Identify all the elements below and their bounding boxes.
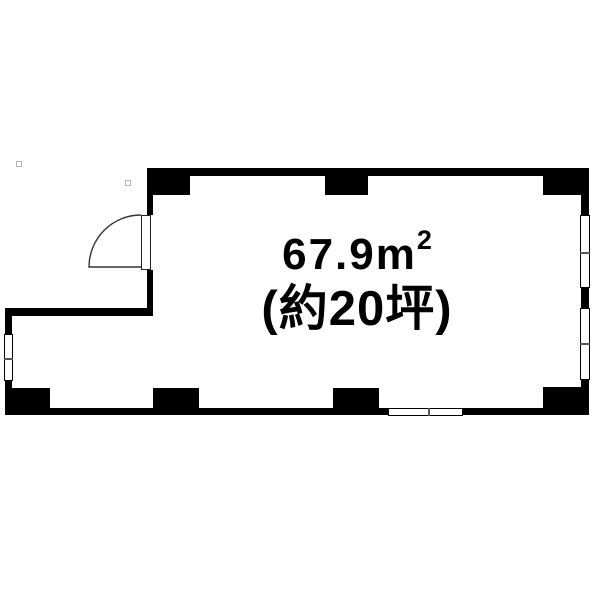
area-superscript: 2 [417, 225, 432, 255]
pillar-bottom-left [7, 388, 50, 415]
window-right-lower-mullion-tick [580, 343, 590, 345]
window-right-upper-mullion-tick [580, 252, 590, 254]
window-right-lower [580, 308, 590, 380]
bottom-wall [5, 408, 589, 415]
window-bottom [388, 408, 463, 416]
stray-square-1 [16, 161, 22, 167]
floor-plan-canvas: 67.9m2 (約20坪) [0, 0, 600, 600]
stray-square-2 [125, 180, 131, 186]
pillar-top-right [543, 168, 588, 195]
pillar-bottom-middle-left [153, 388, 199, 415]
pillar-top-middle [325, 168, 368, 195]
area-unit: m [376, 230, 417, 279]
pillar-bottom-middle-right [333, 388, 379, 415]
top-wall [147, 168, 589, 176]
area-label: 67.9m2 (約20坪) [147, 233, 567, 337]
area-value: 67.9 [282, 230, 376, 279]
door-swing-arc [86, 210, 148, 272]
window-left-mullion-tick [4, 358, 13, 360]
area-size-line: 67.9m2 [147, 233, 567, 277]
pillar-bottom-right [543, 387, 587, 415]
step-wall [5, 308, 152, 316]
window-bottom-mullion-tick [428, 408, 430, 416]
pillar-top-left [147, 168, 190, 195]
door-panel [141, 215, 151, 270]
window-right-upper [580, 215, 590, 288]
area-tsubo-line: (約20坪) [147, 281, 567, 337]
window-left [4, 334, 13, 381]
